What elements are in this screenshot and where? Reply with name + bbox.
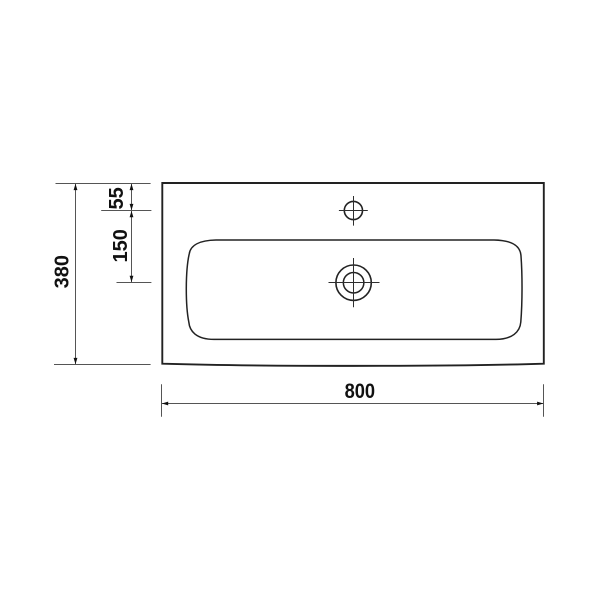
svg-text:150: 150 [110, 229, 132, 262]
svg-text:55: 55 [106, 187, 128, 209]
svg-text:380: 380 [52, 255, 74, 288]
svg-text:800: 800 [345, 380, 376, 403]
